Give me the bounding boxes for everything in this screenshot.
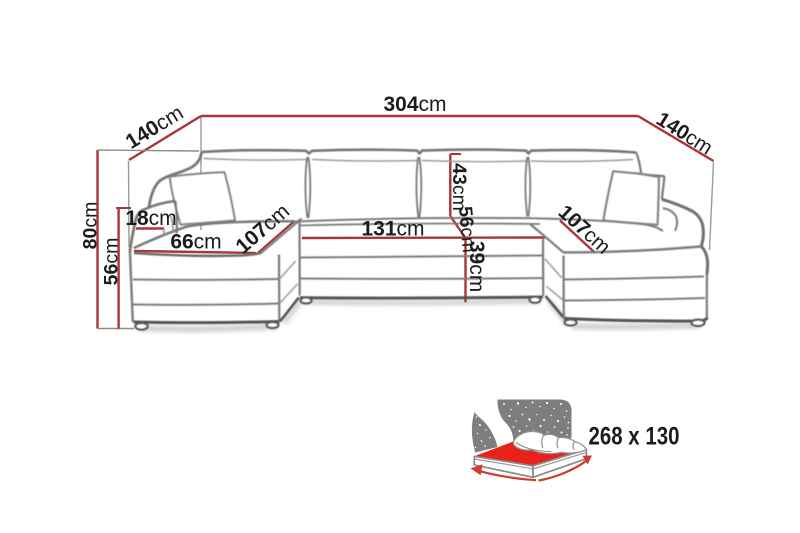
svg-text:131cm: 131cm bbox=[361, 218, 424, 241]
svg-text:80cm: 80cm bbox=[80, 202, 102, 250]
svg-text:56cm: 56cm bbox=[101, 238, 123, 286]
svg-text:39cm: 39cm bbox=[465, 241, 488, 292]
svg-text:43cm: 43cm bbox=[448, 163, 470, 211]
svg-text:268 x 130: 268 x 130 bbox=[589, 423, 680, 451]
svg-text:304cm: 304cm bbox=[383, 93, 446, 116]
svg-text:66cm: 66cm bbox=[170, 231, 221, 254]
svg-text:18cm: 18cm bbox=[125, 207, 176, 230]
